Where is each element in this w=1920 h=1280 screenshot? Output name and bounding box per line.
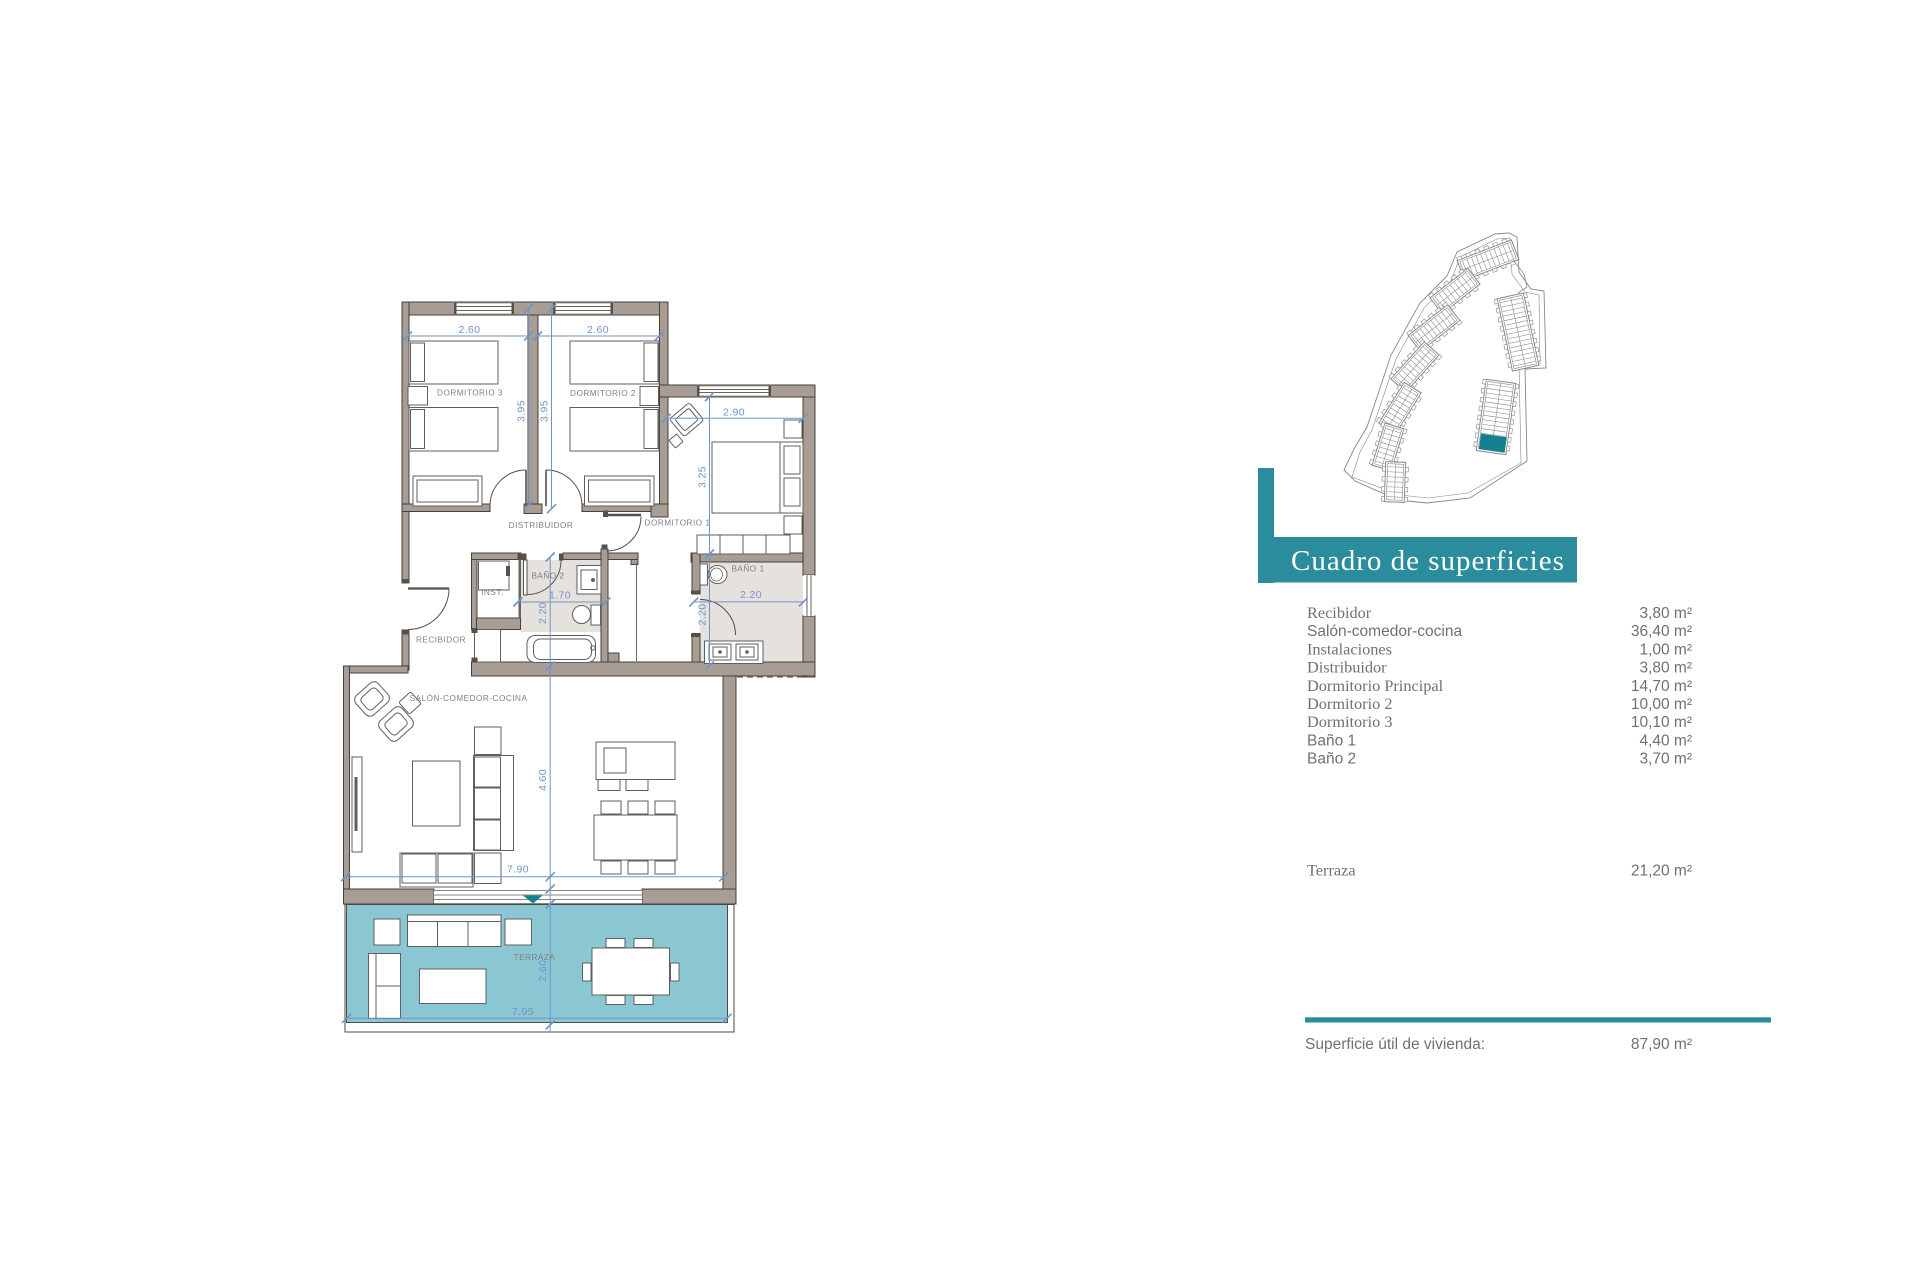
svg-text:2.60: 2.60 [537,960,549,982]
svg-text:2.20: 2.20 [537,602,549,624]
svg-text:21,20 m²: 21,20 m² [1631,862,1692,879]
svg-text:3.95: 3.95 [516,400,528,422]
svg-text:4,40 m²: 4,40 m² [1639,732,1692,749]
svg-text:Recibidor: Recibidor [1307,603,1372,622]
svg-text:3.25: 3.25 [697,466,709,488]
svg-text:Salón-comedor-cocina: Salón-comedor-cocina [1307,623,1462,640]
svg-text:Dormitorio Principal: Dormitorio Principal [1307,676,1444,695]
svg-text:Dormitorio 3: Dormitorio 3 [1307,712,1392,731]
svg-text:2.60: 2.60 [587,324,609,336]
svg-text:3,80 m²: 3,80 m² [1639,605,1692,622]
svg-text:RECIBIDOR: RECIBIDOR [416,636,466,645]
svg-text:14,70 m²: 14,70 m² [1631,678,1692,695]
svg-text:1,00 m²: 1,00 m² [1639,641,1692,658]
svg-text:1.70: 1.70 [549,589,571,601]
svg-text:Cuadro de superficies: Cuadro de superficies [1291,545,1565,577]
svg-text:2.20: 2.20 [740,589,762,601]
svg-text:Dormitorio 2: Dormitorio 2 [1307,694,1392,713]
svg-text:DISTRIBUIDOR: DISTRIBUIDOR [509,521,574,530]
svg-text:DORMITORIO 2: DORMITORIO 2 [570,389,636,398]
svg-text:3,80 m²: 3,80 m² [1639,660,1692,677]
svg-text:SALÓN-COMEDOR-COCINA: SALÓN-COMEDOR-COCINA [410,693,528,703]
svg-text:INST.: INST. [481,588,504,597]
svg-text:Baño 1: Baño 1 [1307,732,1356,749]
svg-text:Superficie útil de vivienda:: Superficie útil de vivienda: [1305,1036,1485,1053]
svg-text:Baño 2: Baño 2 [1307,751,1356,768]
svg-text:4.60: 4.60 [537,769,549,791]
svg-text:7.95: 7.95 [512,1006,534,1018]
svg-text:Distribuidor: Distribuidor [1307,658,1387,677]
svg-text:Instalaciones: Instalaciones [1307,639,1392,658]
svg-text:3.95: 3.95 [539,400,551,422]
svg-text:7.90: 7.90 [507,864,529,876]
svg-text:Terraza: Terraza [1307,860,1356,879]
svg-text:2.60: 2.60 [458,324,480,336]
svg-text:2.90: 2.90 [723,406,745,418]
svg-text:BAÑO 1: BAÑO 1 [731,564,764,574]
svg-text:DORMITORIO 3: DORMITORIO 3 [437,389,503,398]
svg-text:36,40 m²: 36,40 m² [1631,623,1692,640]
svg-text:87,90 m²: 87,90 m² [1631,1036,1692,1053]
svg-text:DORMITORIO 1: DORMITORIO 1 [645,519,711,528]
svg-text:3,70 m²: 3,70 m² [1639,751,1692,768]
svg-text:TERRAZA: TERRAZA [514,953,556,962]
svg-text:10,00 m²: 10,00 m² [1631,696,1692,713]
svg-text:2.20: 2.20 [697,603,709,625]
svg-text:10,10 m²: 10,10 m² [1631,714,1692,731]
svg-text:BAÑO 2: BAÑO 2 [531,571,564,581]
